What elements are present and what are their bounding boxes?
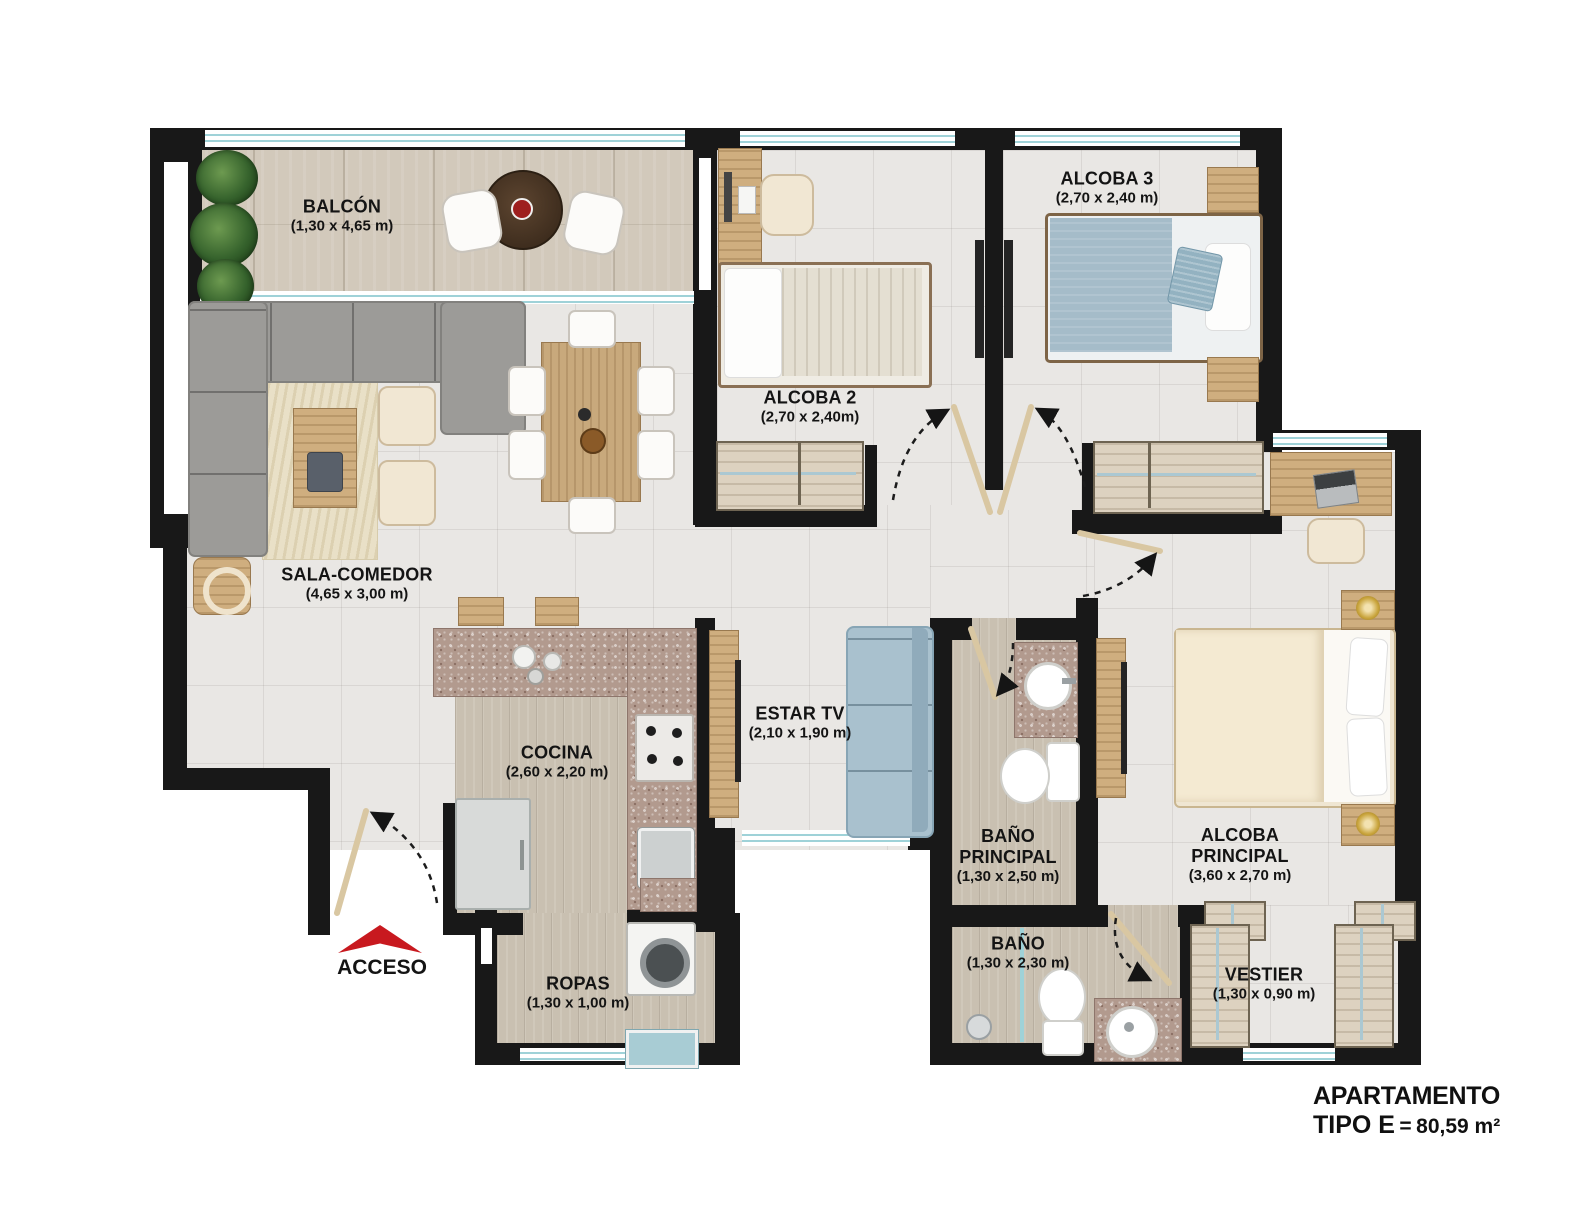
- tv: [1004, 240, 1013, 358]
- room-dims: (3,60 x 2,70 m): [1175, 867, 1305, 885]
- window: [740, 131, 955, 146]
- dining-chair: [568, 497, 616, 534]
- access-label: ACCESO: [337, 956, 427, 980]
- laundry-sink: [626, 1030, 698, 1068]
- room-name: BAÑO: [933, 934, 1103, 955]
- armchair: [378, 460, 436, 526]
- label-bano: BAÑO (1,30 x 2,30 m): [933, 934, 1103, 973]
- lamp: [1356, 596, 1380, 620]
- room-name: ALCOBA PRINCIPAL: [1175, 825, 1305, 867]
- title-line1: APARTAMENTO: [1313, 1082, 1573, 1111]
- dining-chair: [637, 430, 675, 480]
- closet-rod: [1360, 928, 1363, 1040]
- room-name: ROPAS: [493, 974, 663, 995]
- closet-rod: [1097, 473, 1256, 476]
- closet: [718, 443, 862, 509]
- desk-chair: [1307, 518, 1365, 564]
- floor-plan: BALCÓN (1,30 x 4,65 m) SALA-COMEDOR (4,6…: [0, 0, 1584, 1224]
- wall: [1072, 510, 1282, 534]
- closet: [1095, 443, 1262, 512]
- faucet: [1124, 1022, 1134, 1032]
- label-ropas: ROPAS (1,30 x 1,00 m): [493, 974, 663, 1013]
- stove-burners: [646, 726, 656, 736]
- label-alcoba-principal: ALCOBA PRINCIPAL (3,60 x 2,70 m): [1175, 825, 1305, 885]
- sectional-sofa: [188, 301, 268, 557]
- dining-chair: [508, 430, 546, 480]
- dining-table: [541, 342, 641, 502]
- room-name: SALA-COMEDOR: [237, 565, 477, 586]
- plate: [512, 645, 536, 669]
- room-name: COCINA: [467, 743, 647, 764]
- room-dims: (2,60 x 2,20 m): [467, 764, 647, 782]
- label-vestier: VESTIER (1,30 x 0,90 m): [1179, 965, 1349, 1004]
- label-alcoba3: ALCOBA 3 (2,70 x 2,40 m): [1007, 169, 1207, 208]
- window: [1273, 433, 1387, 447]
- wall: [695, 828, 735, 932]
- toilet-tank: [1046, 742, 1080, 802]
- pan: [527, 668, 544, 685]
- closet-divider: [1148, 443, 1151, 508]
- exterior-notch: [148, 790, 308, 940]
- window: [205, 130, 685, 147]
- bed-double-duvet: [1050, 218, 1172, 352]
- title-area: 80,59 m²: [1416, 1115, 1500, 1138]
- wall: [930, 618, 972, 640]
- dining-chair: [637, 366, 675, 416]
- room-dims: (2,70 x 2,40m): [710, 409, 910, 427]
- dining-chair: [508, 366, 546, 416]
- title-equals: =: [1399, 1115, 1411, 1138]
- armchair: [378, 386, 436, 446]
- bed-pillow: [1345, 637, 1388, 717]
- title-type: TIPO E: [1313, 1111, 1395, 1139]
- window: [1015, 131, 1240, 146]
- room-dims: (1,30 x 0,90 m): [1179, 986, 1349, 1004]
- room-dims: (1,30 x 2,50 m): [948, 868, 1068, 886]
- nightstand: [1207, 357, 1259, 402]
- window-niche: [481, 928, 492, 964]
- wall: [308, 768, 330, 935]
- dining-chair: [568, 310, 616, 348]
- label-cocina: COCINA (2,60 x 2,20 m): [467, 743, 647, 782]
- bed-single-pillow: [724, 268, 782, 378]
- toilet-tank: [1042, 1020, 1084, 1056]
- bed-single-duvet: [782, 268, 922, 376]
- closet-rod: [720, 472, 856, 475]
- faucet: [1062, 678, 1076, 684]
- plan-title: APARTAMENTO TIPO E = 80,59 m²: [1313, 1082, 1573, 1140]
- tv: [975, 240, 984, 358]
- room-dims: (1,30 x 1,00 m): [493, 995, 663, 1013]
- wall: [1395, 430, 1421, 927]
- desk-keyboard: [738, 186, 756, 214]
- label-estar: ESTAR TV (2,10 x 1,90 m): [720, 704, 880, 743]
- room-name: ALCOBA 2: [710, 388, 910, 409]
- room-name: BAÑO PRINCIPAL: [948, 826, 1068, 868]
- toilet-bowl: [1038, 968, 1086, 1026]
- sink-basin: [1024, 662, 1072, 710]
- fridge-handle: [520, 840, 524, 870]
- room-dims: (2,70 x 2,40 m): [1007, 190, 1207, 208]
- room-name: ALCOBA 3: [1007, 169, 1207, 190]
- window: [1243, 1048, 1335, 1061]
- lamp: [1356, 812, 1380, 836]
- shower-head: [966, 1014, 992, 1040]
- bed-pillow: [1346, 717, 1388, 797]
- tray: [307, 452, 343, 492]
- wall: [715, 913, 740, 1065]
- bowl: [580, 428, 606, 454]
- closet-divider: [798, 443, 801, 505]
- bottle: [578, 408, 591, 421]
- counter-shelf: [640, 878, 697, 912]
- room-dims: (2,10 x 1,90 m): [720, 725, 880, 743]
- flower-pot: [511, 198, 533, 220]
- room-dims: (4,65 x 3,00 m): [237, 586, 477, 604]
- room-name: ESTAR TV: [720, 704, 880, 725]
- access-arrow-icon: [338, 925, 422, 953]
- nightstand: [1207, 167, 1259, 213]
- room-name: VESTIER: [1179, 965, 1349, 986]
- wall: [865, 445, 877, 507]
- label-sala: SALA-COMEDOR (4,65 x 3,00 m): [237, 565, 477, 604]
- room-dims: (1,30 x 2,30 m): [933, 955, 1103, 973]
- window-niche: [164, 162, 188, 514]
- wall: [1082, 443, 1094, 510]
- sink-basin: [1106, 1006, 1158, 1058]
- label-alcoba2: ALCOBA 2 (2,70 x 2,40m): [710, 388, 910, 427]
- bar-stool: [535, 597, 579, 626]
- wall: [163, 540, 187, 790]
- plate: [543, 652, 562, 671]
- wall: [985, 128, 1003, 490]
- desk-monitor: [724, 172, 732, 222]
- label-bano-principal: BAÑO PRINCIPAL (1,30 x 2,50 m): [948, 826, 1068, 886]
- tv: [1121, 662, 1127, 774]
- label-balcon: BALCÓN (1,30 x 4,65 m): [232, 197, 452, 236]
- desk-chair: [760, 174, 814, 236]
- toilet-bowl: [1000, 748, 1050, 804]
- room-dims: (1,30 x 4,65 m): [232, 218, 452, 236]
- sofa-blue-back: [912, 628, 928, 832]
- wall: [163, 768, 330, 790]
- bed-master-duvet: [1176, 630, 1324, 802]
- window-niche: [699, 158, 711, 290]
- room-name: BALCÓN: [232, 197, 452, 218]
- laptop: [1313, 469, 1359, 509]
